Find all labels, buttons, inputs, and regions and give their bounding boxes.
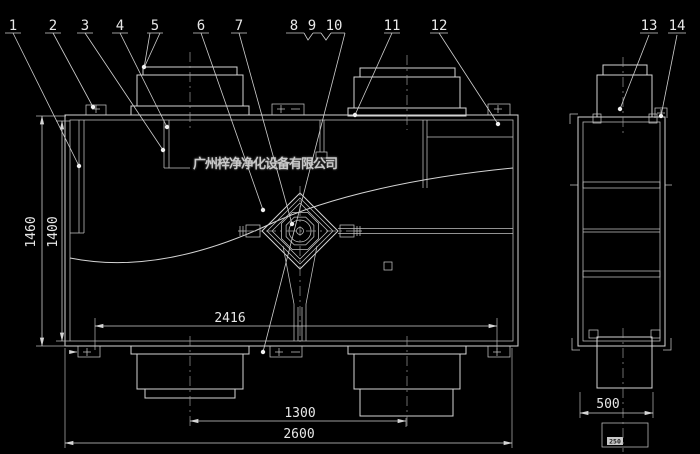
cad-drawing-canvas: 广州梓净净化设备有限公司 250 bbox=[0, 0, 700, 454]
part-label-7: 7 bbox=[235, 18, 243, 34]
part-label-11: 11 bbox=[384, 18, 401, 34]
part-label-2: 2 bbox=[49, 18, 57, 34]
part-label-6: 6 bbox=[197, 18, 205, 34]
engineering-drawing: 广州梓净净化设备有限公司 250 bbox=[0, 0, 700, 454]
svg-text:1300: 1300 bbox=[284, 406, 315, 421]
svg-text:1400: 1400 bbox=[46, 216, 61, 247]
part-label-13: 13 bbox=[641, 18, 658, 34]
part-label-8: 8 bbox=[290, 18, 298, 34]
part-label-9: 9 bbox=[308, 18, 316, 34]
part-label-10: 10 bbox=[326, 18, 343, 34]
part-label-1: 1 bbox=[9, 18, 17, 34]
part-label-3: 3 bbox=[81, 18, 89, 34]
svg-text:2416: 2416 bbox=[214, 311, 245, 326]
side-duct-width-label: 250 bbox=[609, 438, 621, 446]
part-label-5: 5 bbox=[151, 18, 159, 34]
part-label-4: 4 bbox=[116, 18, 124, 34]
svg-text:500: 500 bbox=[596, 397, 619, 412]
svg-text:2600: 2600 bbox=[283, 427, 314, 442]
background bbox=[0, 0, 700, 454]
part-label-14: 14 bbox=[669, 18, 686, 34]
svg-text:1460: 1460 bbox=[24, 216, 39, 247]
company-watermark: 广州梓净净化设备有限公司 bbox=[193, 156, 337, 172]
part-label-12: 12 bbox=[431, 18, 448, 34]
